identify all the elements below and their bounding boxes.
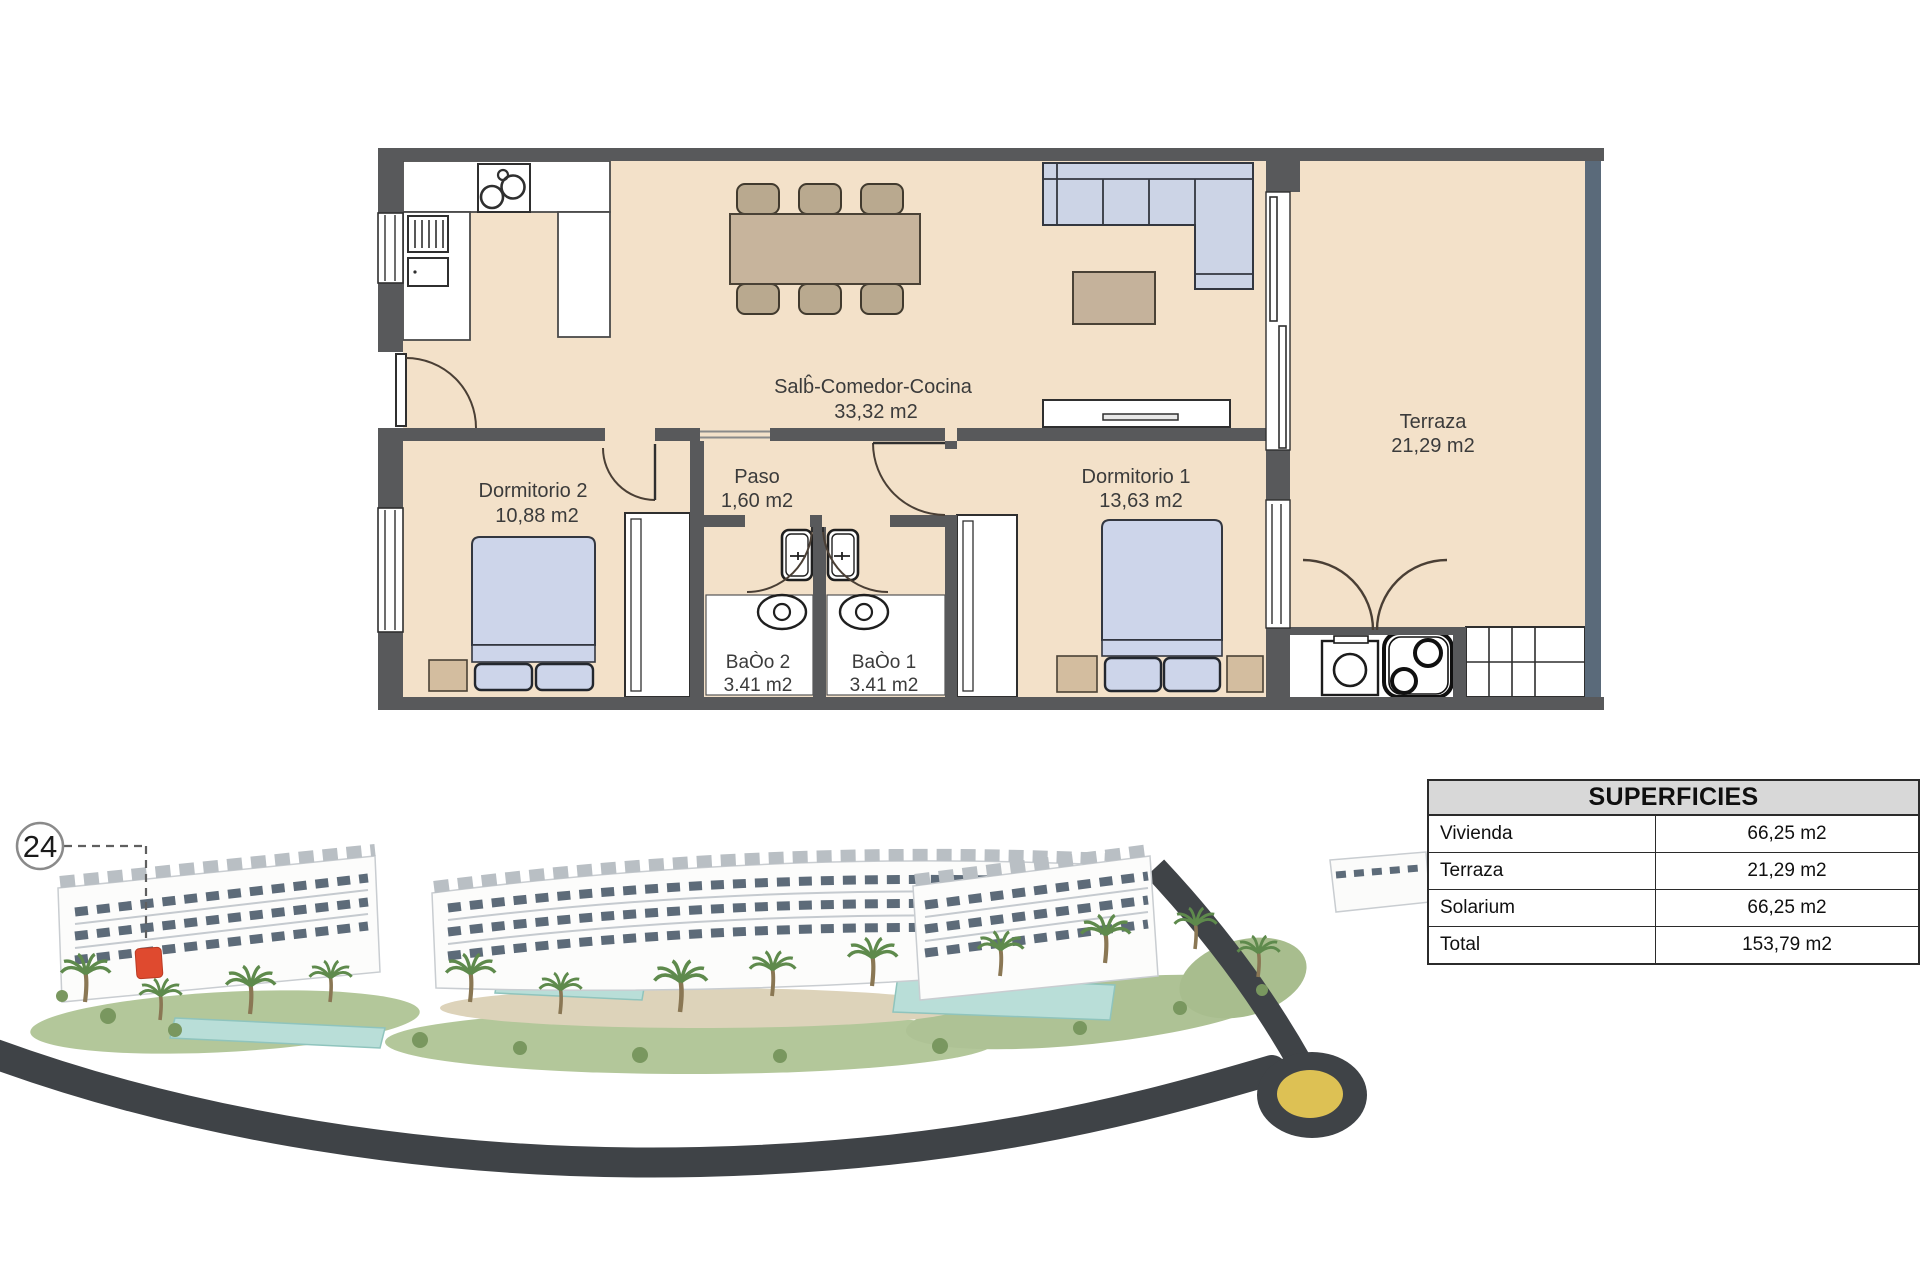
label-dorm2-name: Dormitorio 2 bbox=[479, 480, 588, 502]
tv-icon bbox=[1103, 414, 1178, 420]
vent-icon bbox=[408, 216, 448, 252]
table-row-terraza: Terraza 21,29 m2 bbox=[1429, 853, 1918, 890]
sink-icon bbox=[828, 530, 858, 580]
label-bano1-area: 3.41 m2 bbox=[850, 675, 919, 696]
sink-icon bbox=[782, 530, 812, 580]
superficies-table: SUPERFICIES Vivienda 66,25 m2 Terraza 21… bbox=[1427, 779, 1920, 965]
window-kitchen bbox=[378, 213, 403, 283]
highlighted-unit-marker bbox=[135, 947, 163, 979]
label-bano2-name: BaÒo 2 bbox=[726, 651, 790, 673]
washing-machine-icon bbox=[1322, 636, 1378, 695]
entry-door-leaf bbox=[396, 354, 406, 426]
terrace-utility bbox=[1290, 627, 1585, 697]
table-row-total: Total 153,79 m2 bbox=[1429, 927, 1918, 963]
window-dorm1-terrace bbox=[1266, 500, 1290, 628]
row-value: 66,25 m2 bbox=[1656, 890, 1918, 926]
window-dorm2 bbox=[378, 508, 403, 632]
boiler-icon bbox=[1384, 633, 1452, 697]
label-terraza-name: Terraza bbox=[1400, 411, 1468, 433]
label-bano2-area: 3.41 m2 bbox=[724, 675, 793, 696]
page: 24 bbox=[0, 0, 1920, 1280]
floor-plan: Salb̂-Comedor-Cocina 33,32 m2 Paso 1,60 … bbox=[378, 148, 1604, 710]
table-row-vivienda: Vivienda 66,25 m2 bbox=[1429, 816, 1918, 853]
row-value: 153,79 m2 bbox=[1656, 927, 1918, 963]
nightstand bbox=[1227, 656, 1263, 692]
label-paso-area: 1,60 m2 bbox=[721, 490, 793, 512]
row-label: Solarium bbox=[1429, 890, 1656, 926]
sliding-door-salon-terrace bbox=[1266, 192, 1290, 450]
label-salon-area: 33,32 m2 bbox=[834, 401, 917, 423]
wall-left bbox=[378, 148, 403, 213]
roundabout-center bbox=[1277, 1070, 1343, 1118]
site-render bbox=[0, 850, 1430, 1163]
kitchen-appliances bbox=[408, 216, 448, 286]
superficies-table-title: SUPERFICIES bbox=[1429, 781, 1918, 816]
coffee-table bbox=[1073, 272, 1155, 324]
row-value: 21,29 m2 bbox=[1656, 853, 1918, 889]
toilet-icon bbox=[840, 595, 888, 629]
wall-top bbox=[378, 148, 1604, 161]
building-block-3 bbox=[913, 850, 1158, 1000]
dining-table bbox=[730, 214, 920, 284]
nightstand bbox=[1057, 656, 1097, 692]
label-dorm1-name: Dormitorio 1 bbox=[1082, 466, 1191, 488]
tv-unit bbox=[1043, 400, 1230, 427]
kitchen-peninsula bbox=[558, 212, 610, 337]
row-value: 66,25 m2 bbox=[1656, 816, 1918, 852]
opening-paso bbox=[700, 428, 770, 441]
wall-bottom bbox=[378, 697, 1604, 710]
toilet-icon bbox=[758, 595, 806, 629]
label-bano1-name: BaÒo 1 bbox=[852, 651, 916, 673]
label-terraza-area: 21,29 m2 bbox=[1391, 435, 1474, 457]
hob-icon bbox=[478, 164, 530, 212]
sheet-graphics: 24 bbox=[0, 0, 1920, 1280]
label-dorm2-area: 10,88 m2 bbox=[495, 505, 578, 527]
stairs-grid bbox=[1466, 627, 1585, 697]
row-label: Vivienda bbox=[1429, 816, 1656, 852]
table-row-solarium: Solarium 66,25 m2 bbox=[1429, 890, 1918, 927]
terrace-railing bbox=[1585, 161, 1601, 697]
nightstand bbox=[429, 660, 467, 691]
label-dorm1-area: 13,63 m2 bbox=[1099, 490, 1182, 512]
label-salon-name: Salb̂-Comedor-Cocina bbox=[774, 375, 973, 398]
label-paso-name: Paso bbox=[734, 466, 780, 488]
dining-set bbox=[730, 184, 920, 314]
row-label: Total bbox=[1429, 927, 1656, 963]
unit-number: 24 bbox=[23, 829, 57, 864]
building-wing bbox=[1330, 852, 1430, 912]
row-label: Terraza bbox=[1429, 853, 1656, 889]
